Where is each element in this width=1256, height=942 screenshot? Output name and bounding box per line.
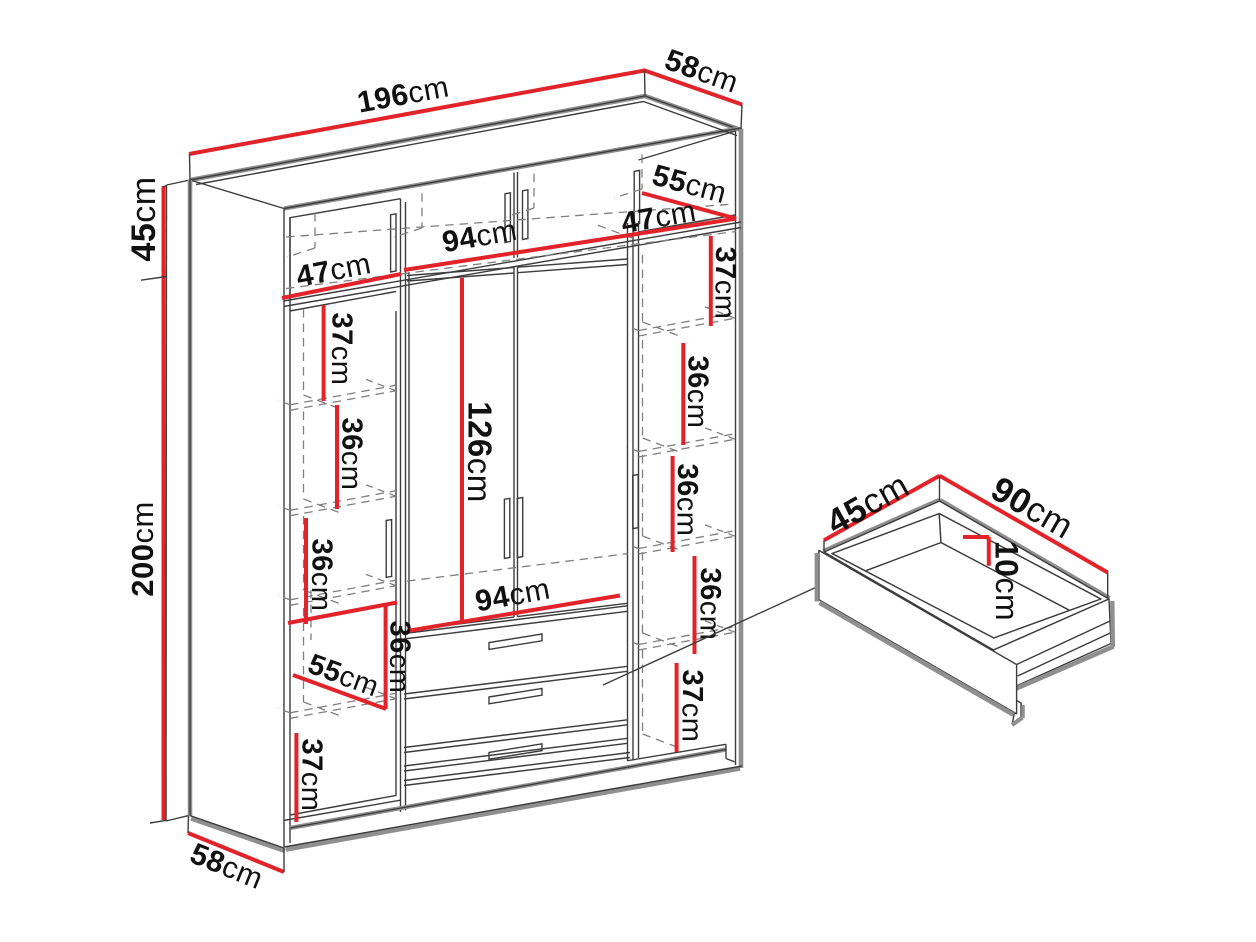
svg-text:36cm: 36cm	[335, 418, 367, 491]
svg-text:37cm: 37cm	[676, 670, 708, 743]
svg-text:37cm: 37cm	[325, 313, 357, 386]
svg-text:36cm: 36cm	[671, 464, 703, 537]
svg-text:37cm: 37cm	[709, 247, 741, 320]
svg-text:45cm: 45cm	[125, 176, 163, 261]
svg-text:36cm: 36cm	[305, 539, 337, 612]
svg-text:36cm: 36cm	[694, 568, 726, 641]
svg-text:36cm: 36cm	[681, 356, 713, 429]
svg-text:10cm: 10cm	[989, 541, 1025, 621]
svg-text:200cm: 200cm	[125, 501, 160, 597]
svg-text:37cm: 37cm	[295, 739, 327, 812]
svg-text:126cm: 126cm	[461, 401, 498, 503]
